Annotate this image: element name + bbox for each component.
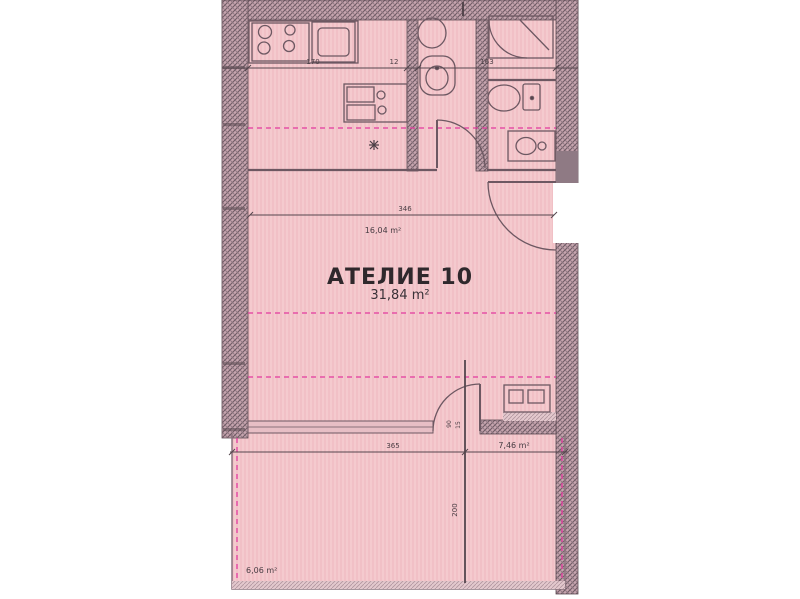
apartment-title: АТЕЛИЕ 10 <box>327 265 473 290</box>
apartment-area-label: 31,84 m² <box>370 288 429 303</box>
wall-bath-wc <box>476 20 488 171</box>
room-area-label: 16,04 m² <box>365 226 401 235</box>
wall-right <box>556 0 578 594</box>
wall-top <box>222 0 578 20</box>
wall-pier <box>556 151 578 183</box>
window-band <box>248 421 433 433</box>
balcony-right-area-label: 7,46 m² <box>498 441 529 450</box>
dim-label-170: 170 <box>306 58 319 66</box>
dim-label-door-offset: 15 <box>455 421 462 429</box>
balcony-left-area-label: 6,06 m² <box>246 566 277 575</box>
wc-flush-dot <box>530 96 533 99</box>
floor-drain-icon <box>369 140 379 150</box>
apartment-floor <box>222 0 578 436</box>
dim-label-12: 12 <box>390 58 399 66</box>
floor-plan-svg: 170 12 163 346 365 200 90 15 16,04 m² АТ… <box>0 0 800 599</box>
wall-kitchen-bath <box>407 20 418 171</box>
dim-label-door-width: 90 <box>446 420 453 428</box>
entrance-opening <box>553 183 580 243</box>
dim-label-163: 163 <box>480 58 493 66</box>
window-sill <box>503 412 556 421</box>
wall-left <box>222 0 248 438</box>
balcony-railing <box>232 581 565 589</box>
balcony-floor <box>232 434 565 589</box>
dim-label-balcony-width: 365 <box>386 442 399 450</box>
dim-label-room-width: 346 <box>398 205 412 213</box>
wall-bottom-right <box>480 420 556 434</box>
dim-label-balcony-depth: 200 <box>451 503 459 516</box>
floor-plan-page: 170 12 163 346 365 200 90 15 16,04 m² АТ… <box>0 0 800 599</box>
